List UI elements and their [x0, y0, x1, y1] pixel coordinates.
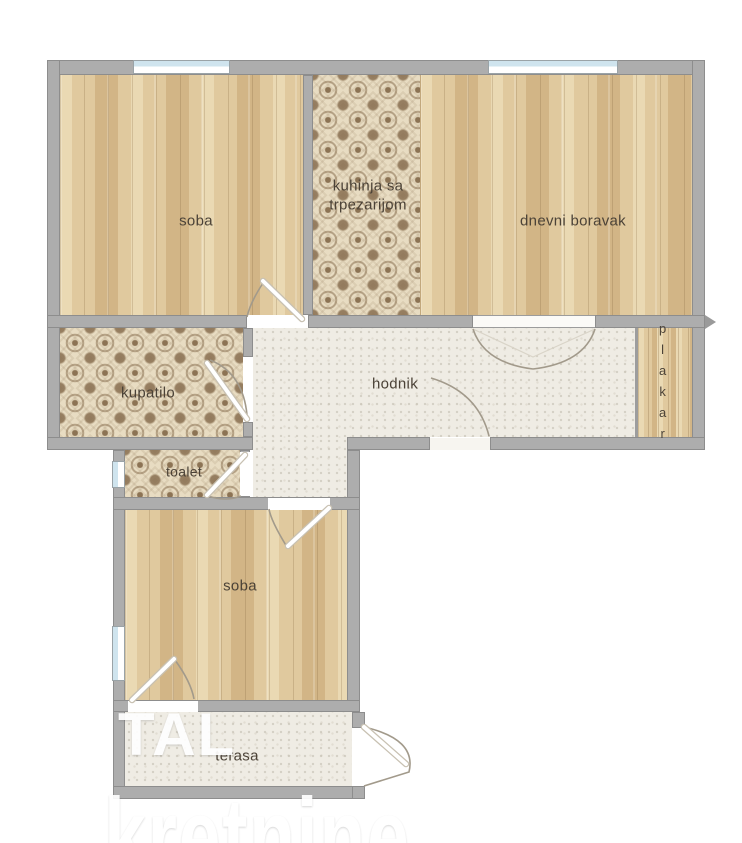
room-label-hodnik: hodnik	[372, 376, 418, 395]
door-swing-arcs	[175, 283, 595, 786]
room-label-dnevni-boravak: dnevni boravak	[520, 213, 626, 232]
room-label-terasa: terasa	[215, 748, 259, 767]
room-label-soba-top: soba	[179, 213, 213, 232]
room-label-toalet: toalet	[166, 463, 202, 481]
room-label-kuhinja: kuhinja sa trpezarijom	[329, 177, 407, 215]
floor-plan: soba kuhinja sa trpezarijom dnevni borav…	[0, 0, 742, 843]
door-swing-overlay	[0, 0, 742, 843]
room-label-soba-bottom: soba	[223, 578, 257, 597]
room-label-kupatilo: kupatilo	[121, 385, 175, 404]
door-leaves	[132, 281, 406, 764]
room-label-plakar: plakar	[654, 321, 670, 447]
